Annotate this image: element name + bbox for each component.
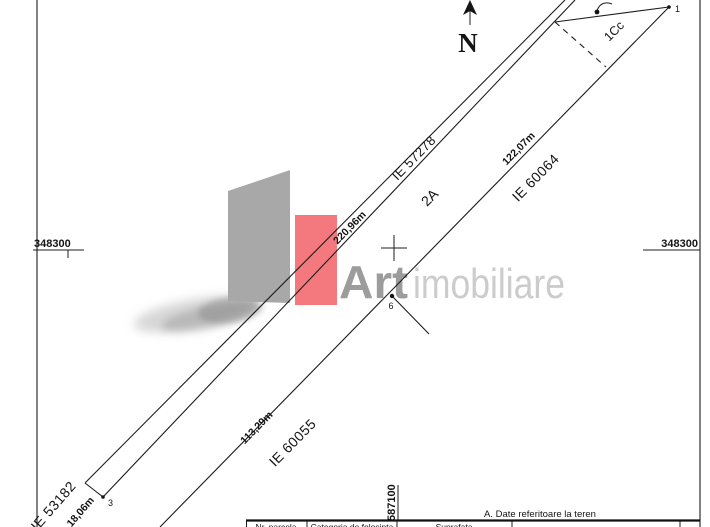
label-dim-122-07: 122,07m <box>500 130 538 168</box>
label-parcel-1cc: 1Cc <box>601 18 627 44</box>
watermark-gray-block <box>228 170 290 303</box>
point-6-marker <box>390 294 394 298</box>
grid-label-northing-right: 348300 <box>661 238 698 250</box>
label-neighbor-ie-57278: IE 57278 <box>389 133 439 183</box>
label-dim-113-29: 113,29m <box>238 409 275 447</box>
north-label: N <box>458 28 478 58</box>
grid-label-northing-left: 348300 <box>34 238 71 250</box>
label-dim-18-06: 18,06m <box>65 495 97 527</box>
label-point-6: 6 <box>388 301 393 311</box>
boundary-nw-inner <box>103 0 575 497</box>
cadastral-plan: Art imobiliare 348300 348300 587100 N <box>0 0 710 527</box>
north-arrow: N <box>458 0 478 58</box>
pole-symbol-hook <box>597 3 612 11</box>
boundary-1cc-dashed <box>555 22 606 67</box>
table-col-nr-parcela: Nr. parcela <box>255 522 296 527</box>
watermark-brand-light: imobiliare <box>413 260 565 307</box>
label-parcel-2a: 2A <box>418 185 442 209</box>
boundary-cap-ne <box>555 7 669 22</box>
point-3-marker <box>101 495 105 499</box>
label-neighbor-ie-60055: IE 60055 <box>266 415 320 469</box>
table-section-title: A. Date referitoare la teren <box>484 509 596 520</box>
label-point-3: 3 <box>108 498 113 508</box>
land-data-table: A. Date referitoare la teren Nr. parcela… <box>246 509 700 527</box>
table-col-suprafata: Suprafata <box>436 522 473 527</box>
boundary-nw-outer <box>85 0 565 483</box>
watermark-brand-bold: Art <box>339 256 408 308</box>
table-col-categoria: Categoria de folosinta <box>311 522 394 527</box>
watermark-red-block <box>295 215 337 305</box>
grid-label-easting-bottom: 587100 <box>386 484 398 521</box>
label-point-1: 1 <box>675 4 680 14</box>
point-1-marker <box>667 5 671 9</box>
pole-symbol <box>595 3 612 15</box>
plan-canvas: Art imobiliare 348300 348300 587100 N <box>0 0 710 527</box>
